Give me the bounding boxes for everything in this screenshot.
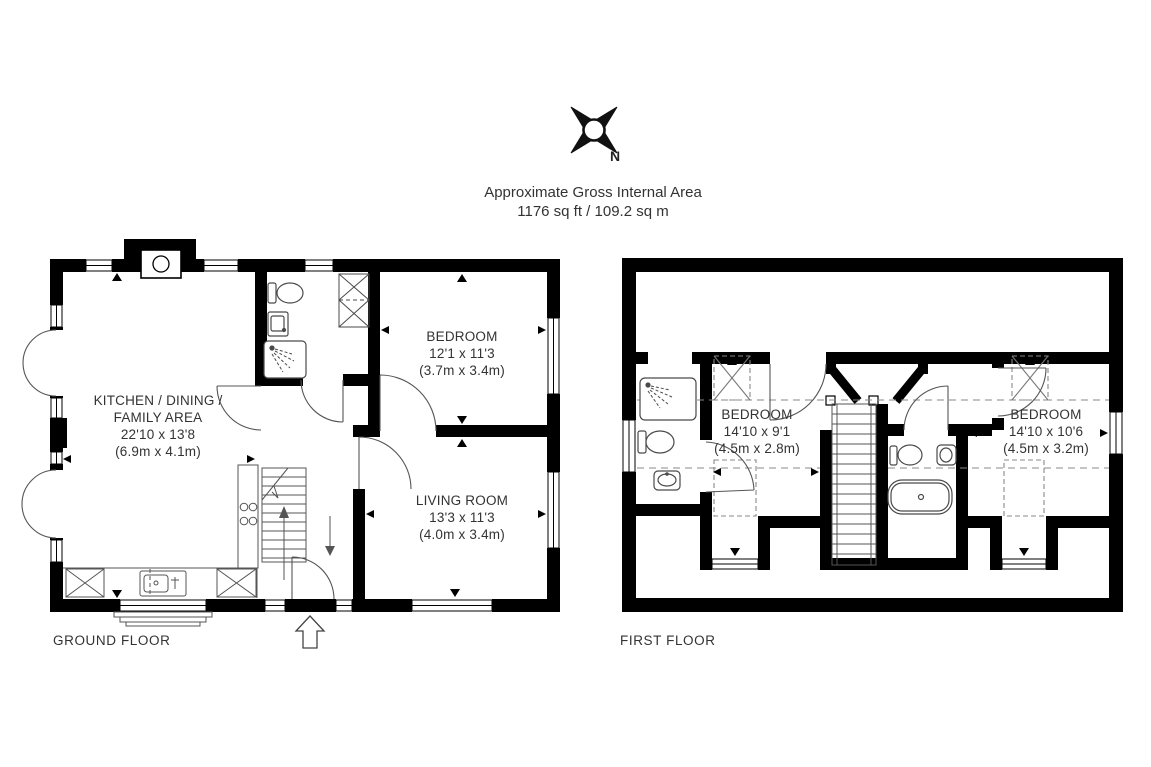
area-title: Approximate Gross Internal Area 1176 sq … [343,183,843,221]
gf-internal-walls [255,272,547,599]
room-name: KITCHEN / DINING / [58,392,258,409]
room-dims-metric: (4.0m x 3.4m) [377,526,547,543]
room-dims-imperial: 14'10 x 9'1 [672,423,842,440]
room-dims-imperial: 13'3 x 11'3 [377,509,547,526]
ff-internal-walls [636,352,1109,570]
room-label-bedroom-ff-left: BEDROOM 14'10 x 9'1 (4.5m x 2.8m) [672,406,842,457]
room-label-kitchen: KITCHEN / DINING / FAMILY AREA 22'10 x 1… [58,392,258,460]
floorplan-drawing [0,0,1151,767]
gf-stove-icon [141,250,181,278]
area-title-line2: 1176 sq ft / 109.2 sq m [343,202,843,221]
first-floor-label: FIRST FLOOR [620,633,716,648]
sink-icon [937,445,956,465]
gf-cupboard-icon [339,274,369,327]
room-name: BEDROOM [377,328,547,345]
sink-icon [654,471,680,490]
sink-icon [268,312,288,336]
room-dims-imperial: 14'10 x 10'6 [961,423,1131,440]
compass-rose-icon [571,107,617,153]
toilet-icon [268,283,303,303]
entrance-arrow-icon [296,616,324,648]
shower-icon [264,341,306,378]
kitchen-sink-icon [140,571,186,596]
room-label-living-room: LIVING ROOM 13'3 x 11'3 (4.0m x 3.4m) [377,492,547,543]
gf-steps [114,612,212,626]
room-dims-metric: (6.9m x 4.1m) [58,443,258,460]
gf-stairs [262,468,335,580]
room-name: LIVING ROOM [377,492,547,509]
north-label: N [610,148,620,164]
bath-icon [888,480,952,514]
room-label-bedroom-gf: BEDROOM 12'1 x 11'3 (3.7m x 3.4m) [377,328,547,379]
hob-icon [240,503,257,525]
room-dims-metric: (3.7m x 3.4m) [377,362,547,379]
appliance-icon [66,569,256,597]
ground-floor-label: GROUND FLOOR [53,633,170,648]
room-name: BEDROOM [672,406,842,423]
toilet-icon [890,445,922,465]
gf-shower-room [264,283,306,378]
stairs-down-arrow [325,516,335,556]
room-label-bedroom-ff-right: BEDROOM 14'10 x 10'6 (4.5m x 3.2m) [961,406,1131,457]
room-name: BEDROOM [961,406,1131,423]
gf-kitchen-counter [63,465,258,598]
room-dims-metric: (4.5m x 2.8m) [672,440,842,457]
room-dims-metric: (4.5m x 3.2m) [961,440,1131,457]
stairs-up-arrow [279,506,289,580]
ff-bathroom [888,445,956,514]
area-title-line1: Approximate Gross Internal Area [343,183,843,202]
room-dims-imperial: 12'1 x 11'3 [377,345,547,362]
room-name: FAMILY AREA [58,409,258,426]
room-dims-imperial: 22'10 x 13'8 [58,426,258,443]
floorplan-page: N Approximate Gross Internal Area 1176 s… [0,0,1151,767]
toilet-icon [638,431,674,453]
